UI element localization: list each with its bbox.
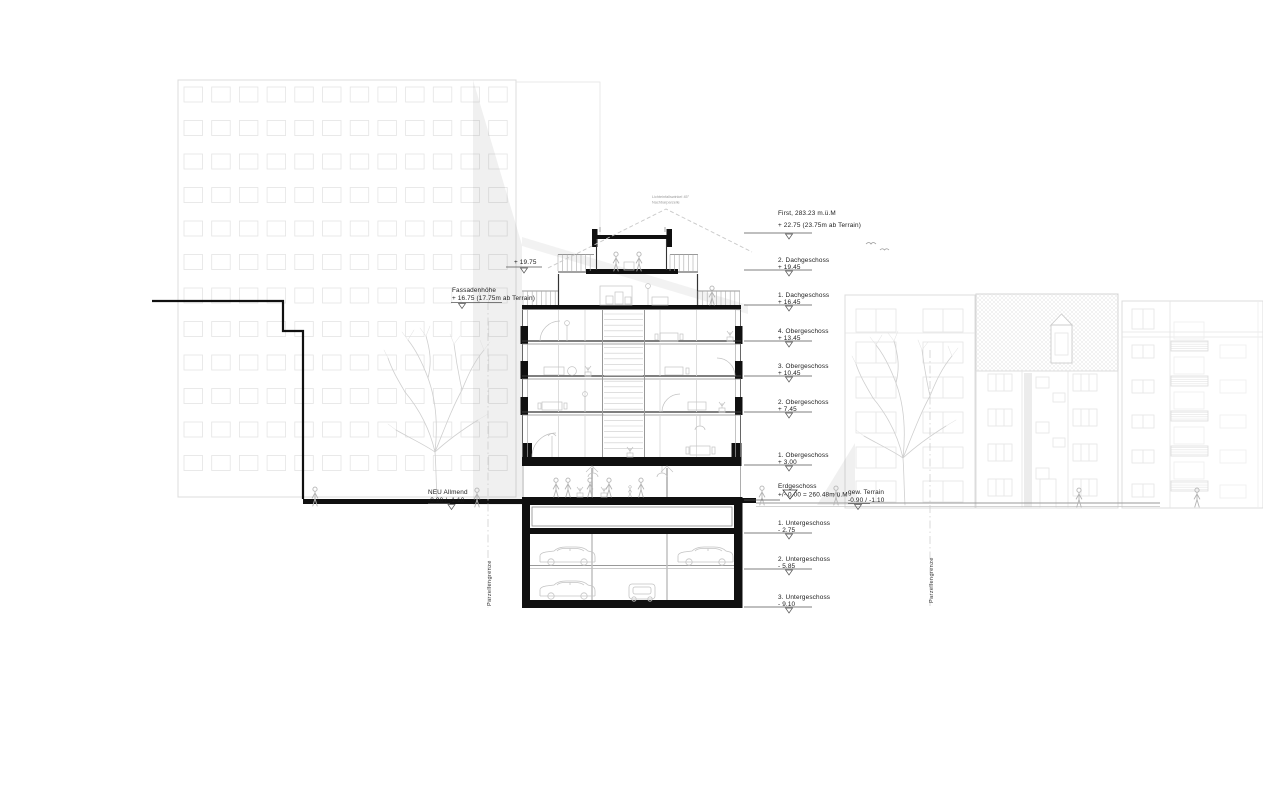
level-value: - 2.75 xyxy=(778,527,796,534)
balcony-railing xyxy=(1171,411,1208,421)
level-value: + 7.45 xyxy=(778,406,797,413)
level-name: First, 283.23 m.ü.M xyxy=(778,210,836,217)
balcony-railing xyxy=(1171,341,1208,351)
roof-note-line1: Lichteinfallswinkel 45° xyxy=(652,195,690,199)
level-value: - 9.10 xyxy=(778,601,796,608)
balcony-railing xyxy=(1171,481,1208,491)
level-name: Erdgeschoss xyxy=(778,483,817,490)
balcony-railing xyxy=(1171,376,1208,386)
birds xyxy=(866,243,889,251)
attic-2 xyxy=(558,227,698,271)
level-marker-og2: 2. Obergeschoss + 7.45 xyxy=(744,399,829,418)
level-value: + 13.45 xyxy=(778,335,801,342)
background-building-right-a xyxy=(845,295,975,508)
stair-core xyxy=(603,310,645,457)
parcel-boundary-label: Parzellengrenze xyxy=(929,557,935,603)
background-building-right-c xyxy=(1122,301,1263,508)
level-value: - 5.85 xyxy=(778,563,796,570)
background-building-right-b xyxy=(976,294,1118,508)
roof-hatch xyxy=(976,294,1118,371)
level-value: + 22.75 (23.75m ab Terrain) xyxy=(778,222,861,229)
architectural-section-drawing: Parzellengrenze Parzellengrenze xyxy=(0,0,1263,800)
allmend-value: -0.90 / -1.10 xyxy=(428,497,465,504)
basement xyxy=(522,497,743,608)
background-building-left xyxy=(178,80,600,497)
parapet-value: + 19.75 xyxy=(514,259,537,266)
level-value: + 3.00 xyxy=(778,459,797,466)
level-marker-og1: 1. Obergeschoss + 3.00 xyxy=(744,452,829,471)
allmend-name: NEU Allmend xyxy=(428,489,468,496)
level-marker-og4: 4. Obergeschoss + 13.45 xyxy=(744,328,829,347)
fassade-name: Fassadenhöhe xyxy=(452,287,496,294)
terrain-value: -0.90 / -1.10 xyxy=(848,497,885,504)
elevation-markers-right: First, 283.23 m.ü.M + 22.75 (23.75m ab T… xyxy=(744,210,861,613)
level-value: + 10.45 xyxy=(778,370,801,377)
dormer xyxy=(1051,325,1072,363)
level-marker-ug3: 3. Untergeschoss - 9.10 xyxy=(744,594,830,613)
level-value: + 16.45 xyxy=(778,299,801,306)
level-marker-ug1: 1. Untergeschoss - 2.75 xyxy=(744,520,830,539)
parcel-boundary-label: Parzellengrenze xyxy=(487,560,493,606)
marker-neu-allmend: NEU Allmend -0.90 / -1.10 xyxy=(428,489,468,510)
level-marker-first: First, 283.23 m.ü.M + 22.75 (23.75m ab T… xyxy=(744,210,861,239)
roof-note-line2: Nachbarparzelle xyxy=(652,201,680,205)
terrain-name: gew. Terrain xyxy=(848,489,884,496)
level-marker-dg2: 2. Dachgeschoss + 19.45 xyxy=(744,257,829,276)
facade-walls xyxy=(521,310,743,457)
level-marker-ug2: 2. Untergeschoss - 5.85 xyxy=(744,556,830,575)
level-marker-og3: 3. Obergeschoss + 10.45 xyxy=(744,363,829,382)
level-value: + 19.45 xyxy=(778,264,801,271)
fassade-value: + 16.75 (17.75m ab Terrain) xyxy=(452,295,535,302)
level-marker-dg1: 1. Dachgeschoss + 16.45 xyxy=(744,292,829,311)
balcony-railing xyxy=(1171,446,1208,456)
